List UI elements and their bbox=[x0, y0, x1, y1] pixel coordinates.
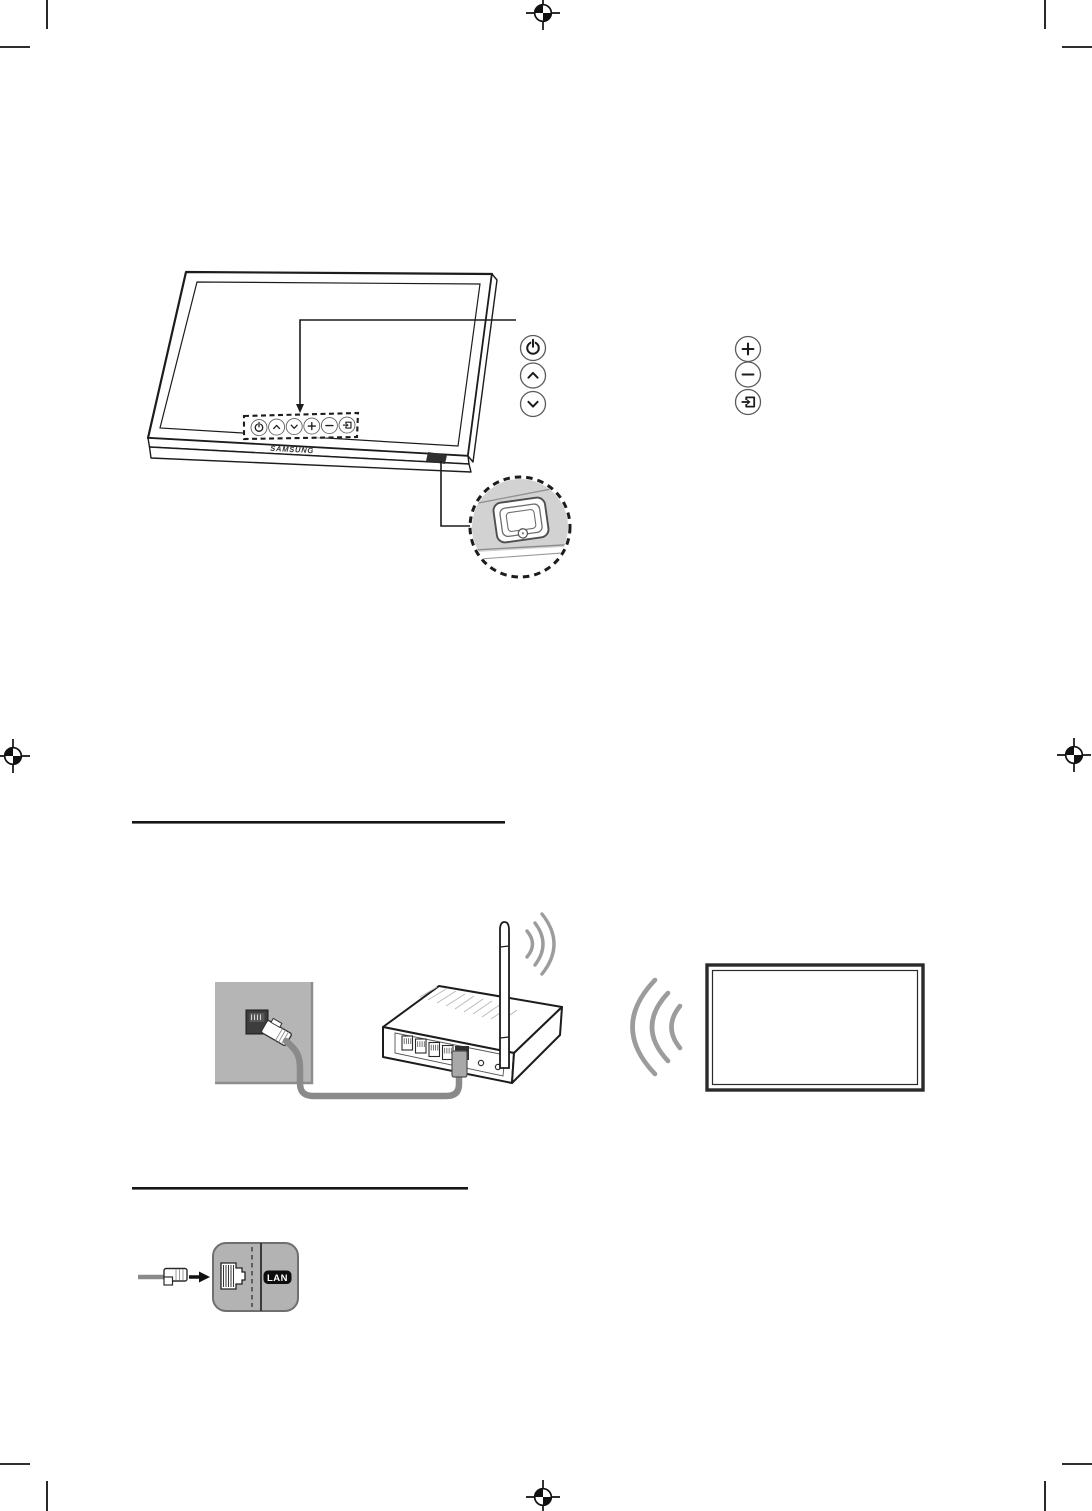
section-rule-2 bbox=[132, 1187, 468, 1190]
tv-power-icon bbox=[251, 420, 267, 436]
arrow-right-icon bbox=[199, 1272, 210, 1283]
tv-volume-down-icon bbox=[321, 418, 337, 434]
manual-page: SAMSUNG bbox=[0, 0, 1092, 1511]
legend-chevron-down-icon bbox=[521, 392, 546, 417]
tv-controller-illustration: SAMSUNG bbox=[148, 272, 580, 577]
router-lan-port-1 bbox=[402, 1036, 413, 1050]
wireless-router bbox=[383, 986, 562, 1083]
legend-power-icon bbox=[521, 336, 546, 361]
tv-source-icon bbox=[339, 417, 355, 433]
router-wifi-arcs bbox=[527, 914, 554, 974]
tv-wifi-arcs bbox=[633, 980, 681, 1074]
router-lan-port-3 bbox=[429, 1043, 440, 1057]
jog-button-detail bbox=[456, 468, 580, 577]
crop-mark-top-right bbox=[1045, 0, 1092, 47]
registration-mark-right bbox=[1057, 738, 1091, 772]
legend-minus-icon bbox=[736, 362, 761, 387]
router-cable-plug bbox=[452, 1051, 467, 1077]
registration-mark-top bbox=[526, 0, 560, 30]
legend-source-icon bbox=[736, 390, 761, 415]
lan-wall-port: LAN bbox=[213, 1243, 298, 1311]
section-rule-1 bbox=[132, 821, 505, 824]
router-lan-port-2 bbox=[416, 1039, 427, 1053]
wireless-network-diagram bbox=[215, 914, 923, 1096]
legend-chevron-up-icon bbox=[521, 363, 546, 388]
button-legend bbox=[521, 336, 761, 417]
registration-mark-bottom bbox=[526, 1480, 560, 1511]
crop-mark-bottom-left bbox=[0, 1464, 47, 1511]
lan-cable-plug bbox=[164, 1269, 187, 1286]
wired-lan-diagram: LAN bbox=[138, 1243, 298, 1311]
registration-mark-left bbox=[0, 739, 30, 773]
tv-channel-up-icon bbox=[269, 419, 285, 435]
manual-page-artwork: SAMSUNG bbox=[0, 0, 1092, 1511]
crop-mark-bottom-right bbox=[1045, 1464, 1092, 1511]
crop-mark-top-left bbox=[0, 0, 47, 47]
tv-channel-down-icon bbox=[286, 419, 302, 435]
jog-controller bbox=[492, 497, 549, 544]
wireless-tv-screen bbox=[707, 965, 923, 1090]
lan-badge-label: LAN bbox=[267, 1273, 288, 1284]
router-led-1 bbox=[478, 1060, 483, 1065]
router-antenna bbox=[500, 922, 509, 1068]
tv-volume-up-icon bbox=[304, 418, 320, 434]
legend-plus-icon bbox=[736, 337, 761, 362]
